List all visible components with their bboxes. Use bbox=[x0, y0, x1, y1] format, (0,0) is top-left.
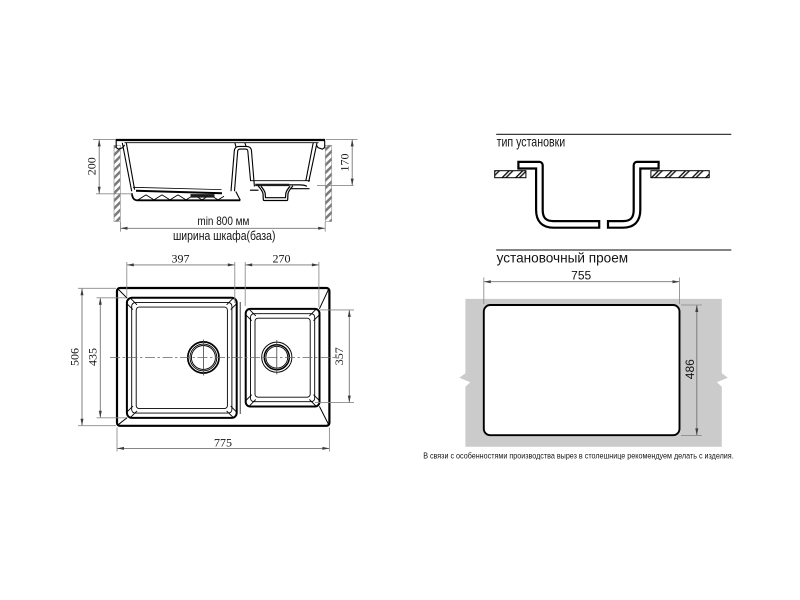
svg-text:755: 755 bbox=[571, 269, 591, 283]
svg-text:435: 435 bbox=[86, 348, 100, 366]
svg-text:установочный проем: установочный проем bbox=[497, 250, 628, 265]
svg-text:397: 397 bbox=[172, 251, 190, 265]
svg-text:270: 270 bbox=[273, 251, 291, 265]
svg-text:506: 506 bbox=[67, 348, 81, 366]
svg-text:486: 486 bbox=[683, 359, 697, 379]
svg-text:min 800 мм: min 800 мм bbox=[197, 215, 249, 228]
svg-text:ширина шкафа(база): ширина шкафа(база) bbox=[173, 229, 276, 243]
svg-text:В связи с особенностями произв: В связи с особенностями производства выр… bbox=[423, 451, 734, 461]
svg-text:775: 775 bbox=[214, 435, 232, 449]
svg-text:357: 357 bbox=[332, 347, 346, 365]
svg-text:170: 170 bbox=[337, 154, 351, 172]
svg-text:тип установки: тип установки bbox=[497, 135, 566, 150]
svg-text:200: 200 bbox=[85, 157, 99, 175]
